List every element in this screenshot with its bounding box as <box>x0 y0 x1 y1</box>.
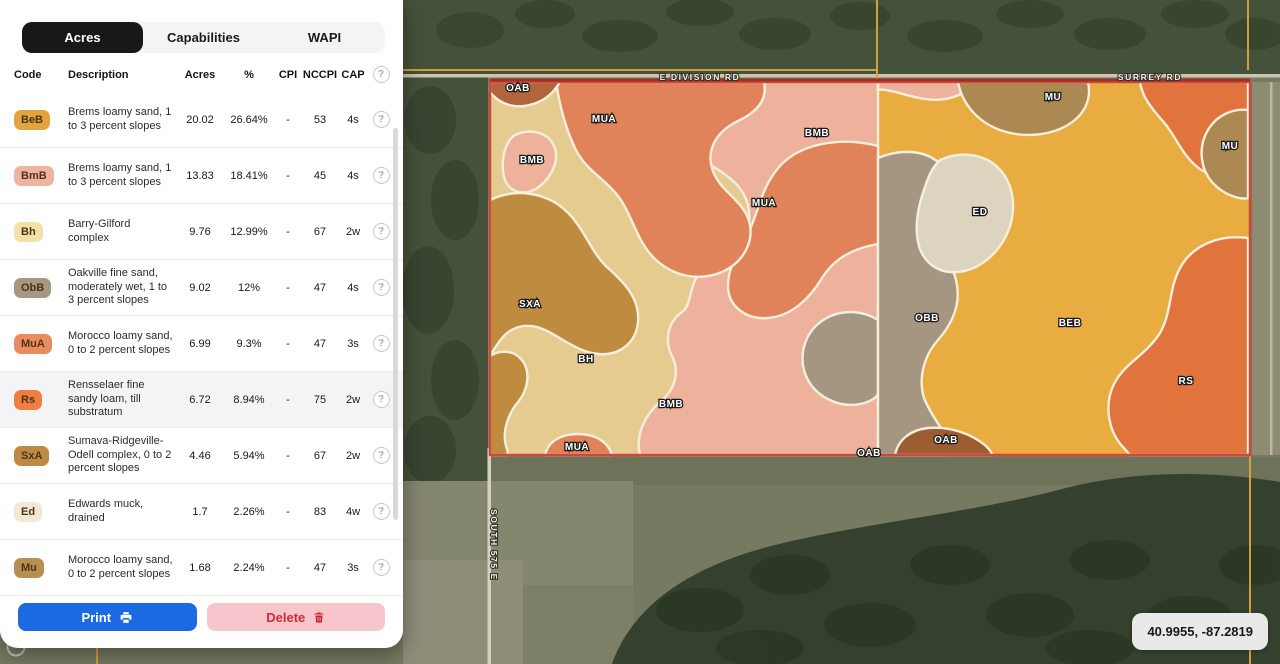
col-code: Code <box>14 69 68 81</box>
nccpi-value: 83 <box>301 506 339 518</box>
soil-map-label: BH <box>578 354 593 365</box>
row-help-icon[interactable]: ? <box>373 447 390 464</box>
percent-value: 5.94% <box>223 450 275 462</box>
cpi-value: - <box>275 450 301 462</box>
table-row[interactable]: EdEdwards muck, drained1.72.26%-834w? <box>0 484 403 540</box>
cap-value: 4w <box>339 506 367 518</box>
table-row[interactable]: MuAMorocco loamy sand, 0 to 2 percent sl… <box>0 316 403 372</box>
row-help-icon[interactable]: ? <box>373 111 390 128</box>
soil-description: Morocco loamy sand, 0 to 2 percent slope… <box>68 330 177 358</box>
road-label: E DIVISION RD <box>660 72 741 82</box>
soil-map-label: MUA <box>592 114 616 125</box>
row-help-icon[interactable]: ? <box>373 279 390 296</box>
percent-value: 12% <box>223 282 275 294</box>
cap-value: 2w <box>339 450 367 462</box>
percent-value: 18.41% <box>223 170 275 182</box>
soil-map-label: BEB <box>1059 318 1082 329</box>
table-header: Code Description Acres % CPI NCCPI CAP ? <box>0 66 403 83</box>
soil-code-badge: Mu <box>14 558 44 578</box>
soil-code-badge: Rs <box>14 390 42 410</box>
col-cap: CAP <box>339 69 367 81</box>
percent-value: 9.3% <box>223 338 275 350</box>
tab-capabilities[interactable]: Capabilities <box>143 22 264 53</box>
soil-description: Sumava-Ridgeville-Odell complex, 0 to 2 … <box>68 435 177 476</box>
help-cell: ? <box>367 223 395 240</box>
percent-value: 26.64% <box>223 114 275 126</box>
row-help-icon[interactable]: ? <box>373 335 390 352</box>
delete-button[interactable]: Delete <box>207 603 386 631</box>
help-cell: ? <box>367 447 395 464</box>
nccpi-value: 67 <box>301 450 339 462</box>
soil-map-label: BMB <box>805 128 829 139</box>
cpi-value: - <box>275 114 301 126</box>
cap-value: 4s <box>339 282 367 294</box>
nccpi-value: 75 <box>301 394 339 406</box>
action-buttons: Print Delete <box>18 603 385 631</box>
print-button[interactable]: Print <box>18 603 197 631</box>
soil-code-badge: Bh <box>14 222 43 242</box>
tab-bar: Acres Capabilities WAPI <box>22 22 385 53</box>
row-help-icon[interactable]: ? <box>373 559 390 576</box>
code-cell: BeB <box>14 110 68 130</box>
cpi-value: - <box>275 394 301 406</box>
nccpi-value: 47 <box>301 338 339 350</box>
acres-value: 9.02 <box>177 282 223 294</box>
soil-map-label: RS <box>1179 376 1194 387</box>
tab-wapi[interactable]: WAPI <box>264 22 385 53</box>
table-row[interactable]: ObBOakville fine sand, moderately wet, 1… <box>0 260 403 316</box>
cap-value: 2w <box>339 394 367 406</box>
coordinates-badge: 40.9955, -87.2819 <box>1132 613 1268 650</box>
percent-value: 2.24% <box>223 562 275 574</box>
table-row[interactable]: MuMorocco loamy sand, 0 to 2 percent slo… <box>0 540 403 596</box>
code-cell: MuA <box>14 334 68 354</box>
table-row[interactable]: BeBBrems loamy sand, 1 to 3 percent slop… <box>0 92 403 148</box>
nccpi-value: 67 <box>301 226 339 238</box>
code-cell: BmB <box>14 166 68 186</box>
trash-icon <box>313 611 325 624</box>
tab-acres[interactable]: Acres <box>22 22 143 53</box>
cpi-value: - <box>275 282 301 294</box>
col-description: Description <box>68 69 177 81</box>
help-cell: ? <box>367 391 395 408</box>
code-cell: Ed <box>14 502 68 522</box>
soil-table-rows: BeBBrems loamy sand, 1 to 3 percent slop… <box>0 92 403 596</box>
soil-code-badge: MuA <box>14 334 52 354</box>
cpi-value: - <box>275 562 301 574</box>
help-cell: ? <box>367 279 395 296</box>
soil-map-label: MU <box>1045 92 1062 103</box>
col-cpi: CPI <box>275 69 301 81</box>
nccpi-value: 45 <box>301 170 339 182</box>
soil-code-badge: ObB <box>14 278 51 298</box>
help-cell: ? <box>367 335 395 352</box>
row-help-icon[interactable]: ? <box>373 167 390 184</box>
soil-map-label: MUA <box>565 442 589 453</box>
cap-value: 4s <box>339 114 367 126</box>
cap-value: 3s <box>339 338 367 350</box>
row-help-icon[interactable]: ? <box>373 503 390 520</box>
soil-description: Barry-Gilford complex <box>68 218 177 246</box>
acres-value: 1.7 <box>177 506 223 518</box>
soil-parcel[interactable] <box>490 80 1250 455</box>
soil-map-label: MUA <box>752 198 776 209</box>
table-row[interactable]: BmBBrems loamy sand, 1 to 3 percent slop… <box>0 148 403 204</box>
code-cell: ObB <box>14 278 68 298</box>
code-cell: SxA <box>14 446 68 466</box>
soil-description: Oakville fine sand, moderately wet, 1 to… <box>68 267 177 308</box>
acres-value: 6.99 <box>177 338 223 350</box>
help-cell: ? <box>367 111 395 128</box>
row-help-icon[interactable]: ? <box>373 391 390 408</box>
col-nccpi: NCCPI <box>301 69 339 81</box>
help-cell: ? <box>367 503 395 520</box>
cpi-value: - <box>275 170 301 182</box>
road-label: SURREY RD <box>1118 72 1182 82</box>
soil-map-label: BMB <box>659 399 683 410</box>
nccpi-value: 53 <box>301 114 339 126</box>
road-label: SOUTH 575 E <box>489 509 499 581</box>
col-percent: % <box>223 69 275 81</box>
percent-value: 2.26% <box>223 506 275 518</box>
soil-description: Edwards muck, drained <box>68 498 177 526</box>
soil-code-badge: BmB <box>14 166 54 186</box>
printer-icon <box>119 611 133 624</box>
code-cell: Mu <box>14 558 68 578</box>
soil-map-label: OAB <box>857 448 881 459</box>
panel-scrollbar[interactable] <box>393 128 398 520</box>
acres-value: 20.02 <box>177 114 223 126</box>
soil-description: Brems loamy sand, 1 to 3 percent slopes <box>68 162 177 190</box>
soil-map-label: ED <box>973 207 988 218</box>
percent-value: 8.94% <box>223 394 275 406</box>
code-cell: Bh <box>14 222 68 242</box>
cap-value: 2w <box>339 226 367 238</box>
acres-value: 4.46 <box>177 450 223 462</box>
help-cell: ? <box>367 559 395 576</box>
soil-map-label: OBB <box>915 313 939 324</box>
cpi-value: - <box>275 226 301 238</box>
nccpi-value: 47 <box>301 282 339 294</box>
header-help-icon[interactable]: ? <box>373 66 390 83</box>
soil-map-label: SXA <box>519 299 541 310</box>
soil-description: Brems loamy sand, 1 to 3 percent slopes <box>68 106 177 134</box>
soil-map-label: OAB <box>506 83 530 94</box>
cpi-value: - <box>275 506 301 518</box>
acres-value: 1.68 <box>177 562 223 574</box>
table-row[interactable]: SxASumava-Ridgeville-Odell complex, 0 to… <box>0 428 403 484</box>
soil-map-label: BMB <box>520 155 544 166</box>
col-acres: Acres <box>177 69 223 81</box>
cpi-value: - <box>275 338 301 350</box>
code-cell: Rs <box>14 390 68 410</box>
row-help-icon[interactable]: ? <box>373 223 390 240</box>
soil-report-panel: Acres Capabilities WAPI Code Description… <box>0 0 403 648</box>
nccpi-value: 47 <box>301 562 339 574</box>
table-row[interactable]: BhBarry-Gilford complex9.7612.99%-672w? <box>0 204 403 260</box>
soil-map-label: MU <box>1222 141 1239 152</box>
acres-value: 13.83 <box>177 170 223 182</box>
soil-description: Morocco loamy sand, 0 to 2 percent slope… <box>68 554 177 582</box>
soil-code-badge: BeB <box>14 110 50 130</box>
cap-value: 3s <box>339 562 367 574</box>
cap-value: 4s <box>339 170 367 182</box>
acres-value: 6.72 <box>177 394 223 406</box>
acres-value: 9.76 <box>177 226 223 238</box>
soil-description: Rensselaer fine sandy loam, till substra… <box>68 379 177 420</box>
soil-code-badge: Ed <box>14 502 42 522</box>
soil-code-badge: SxA <box>14 446 49 466</box>
soil-map-label: OAB <box>934 435 958 446</box>
table-row[interactable]: RsRensselaer fine sandy loam, till subst… <box>0 372 403 428</box>
percent-value: 12.99% <box>223 226 275 238</box>
help-cell: ? <box>367 167 395 184</box>
